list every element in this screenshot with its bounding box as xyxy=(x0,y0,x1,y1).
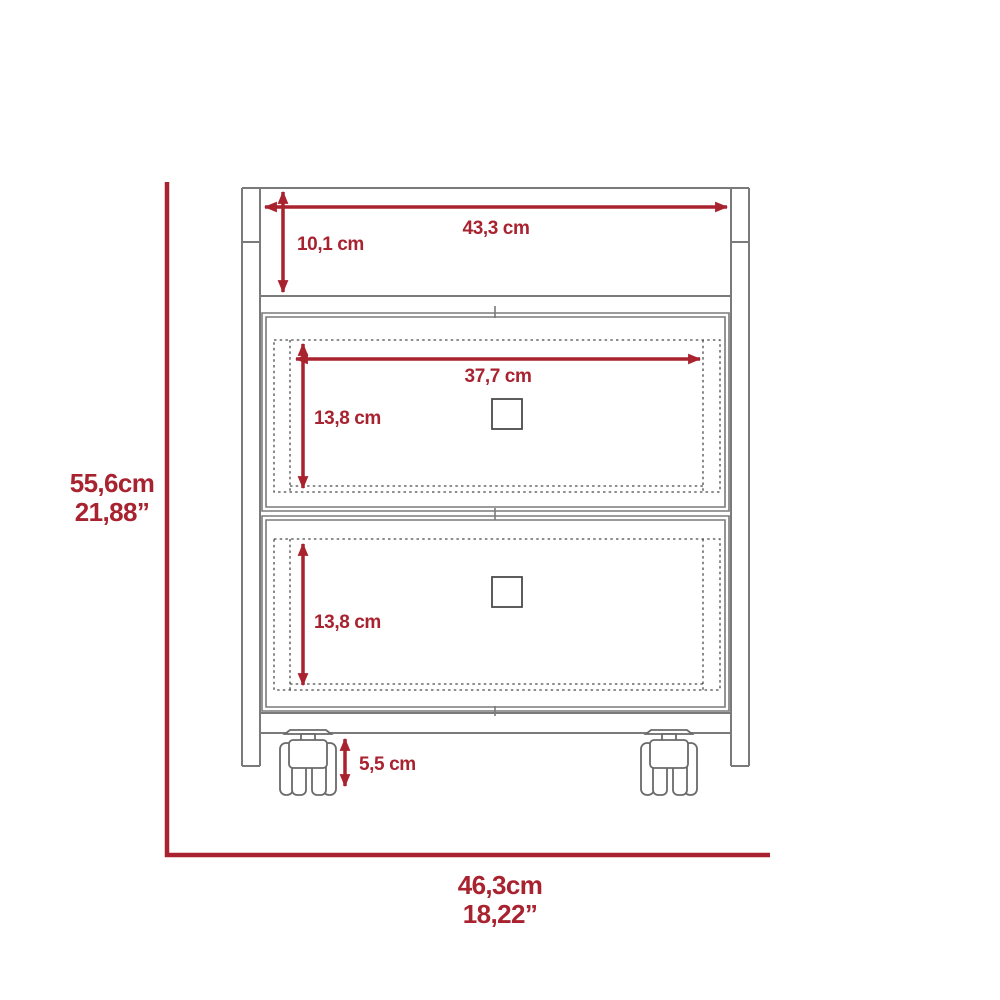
dim-label-drawer-width: 37,7 cm xyxy=(465,366,532,387)
caster-left-hub xyxy=(289,740,327,768)
overall-width-label-in: 18,22” xyxy=(463,899,537,929)
dimension-drawing-canvas: 43,3 cm 10,1 cm 37,7 cm 13,8 cm 13,8 cm … xyxy=(0,0,1000,1000)
furniture-dimension-diagram: 43,3 cm 10,1 cm 37,7 cm 13,8 cm 13,8 cm … xyxy=(0,0,1000,1000)
dim-label-top-width: 43,3 cm xyxy=(463,218,530,239)
dim-label-drawer1-height: 13,8 cm xyxy=(314,408,381,429)
caster-right-hub xyxy=(650,740,688,768)
caster-right xyxy=(641,730,697,795)
overall-height-label-cm: 55,6cm xyxy=(70,468,155,498)
overall-height-label-in: 21,88” xyxy=(75,497,149,527)
drawer-1-handle xyxy=(492,399,522,429)
cabinet-outline xyxy=(242,188,749,766)
dim-label-top-height: 10,1 cm xyxy=(297,234,364,255)
cabinet-frame xyxy=(242,188,749,766)
dimension-annotations: 43,3 cm 10,1 cm 37,7 cm 13,8 cm 13,8 cm … xyxy=(70,182,770,929)
overall-width-label-cm: 46,3cm xyxy=(458,870,543,900)
drawer-2-handle xyxy=(492,577,522,607)
caster-left xyxy=(280,730,336,795)
dim-label-caster-height: 5,5 cm xyxy=(359,754,416,775)
dim-label-drawer2-height: 13,8 cm xyxy=(314,612,381,633)
